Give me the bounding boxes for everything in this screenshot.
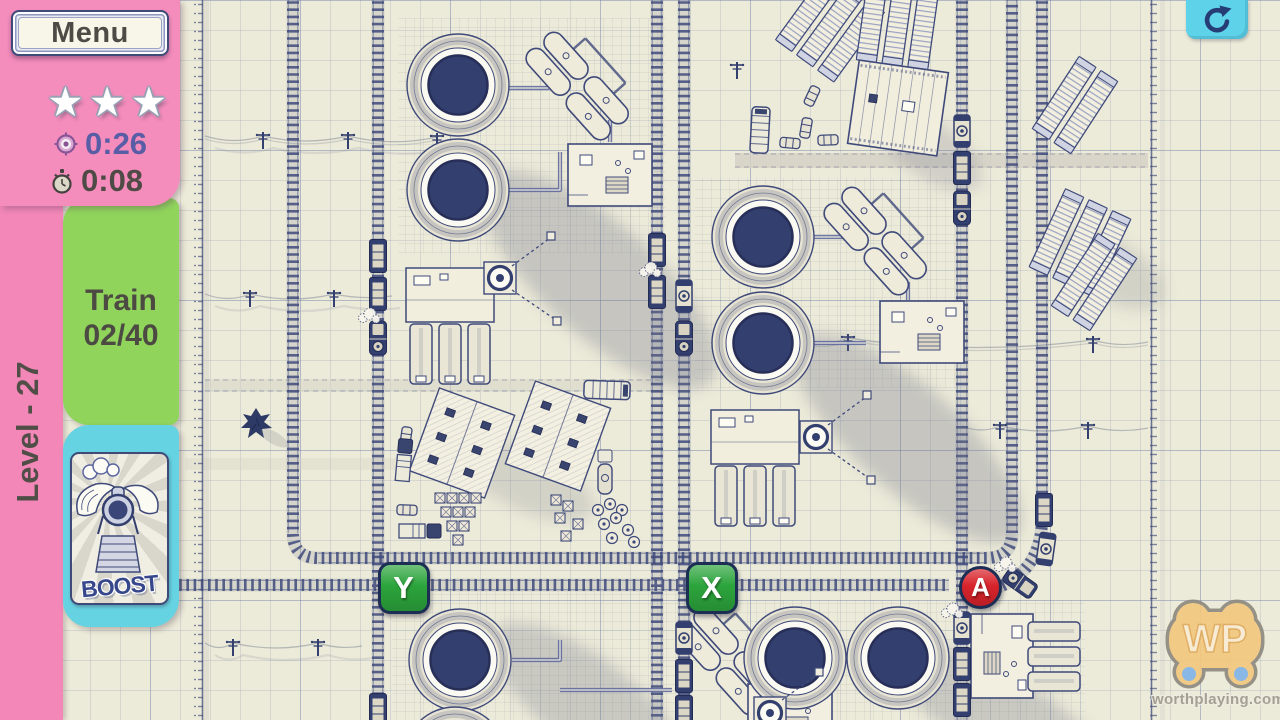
boost-card[interactable]: BOOST xyxy=(70,452,169,605)
wp-logo-icon: WP xyxy=(1159,594,1271,690)
star-icon: ★ xyxy=(89,80,126,124)
train-count: 02/40 xyxy=(63,318,179,353)
target-icon xyxy=(53,131,79,157)
boost-tab: BOOST xyxy=(63,425,179,627)
elapsed-time-value: 0:08 xyxy=(81,163,143,199)
winged-locomotive-icon xyxy=(72,454,163,575)
restart-button[interactable] xyxy=(1186,0,1248,39)
switch-button-A[interactable]: A xyxy=(959,566,1002,609)
watermark: WP worthplaying.com xyxy=(1152,594,1278,708)
switch-button-X[interactable]: X xyxy=(686,562,738,614)
train-counter-tab: Train 02/40 xyxy=(63,198,179,425)
blueprint-map xyxy=(0,0,1280,720)
train-counter-text: Train 02/40 xyxy=(63,283,179,353)
switch-label: Y xyxy=(393,570,414,606)
switch-label: X xyxy=(701,570,722,606)
restart-icon xyxy=(1201,5,1233,35)
elapsed-time-row: 0:08 xyxy=(49,163,143,199)
star-rating: ★ ★ ★ xyxy=(47,80,167,124)
target-time-value: 0:26 xyxy=(85,126,147,162)
level-label: Level - 27 xyxy=(10,302,50,562)
star-icon: ★ xyxy=(47,80,84,124)
menu-button[interactable]: Menu xyxy=(11,10,169,56)
star-icon: ★ xyxy=(131,80,168,124)
menu-button-label: Menu xyxy=(18,17,162,49)
wp-initials: WP xyxy=(1183,617,1247,661)
switch-label: A xyxy=(971,572,990,603)
train-label: Train xyxy=(63,283,179,318)
game-screen: YXA WP worthplaying.com Train 02/40 xyxy=(0,0,1280,720)
switch-button-Y[interactable]: Y xyxy=(378,562,430,614)
stopwatch-icon xyxy=(49,168,75,195)
target-time-row: 0:26 xyxy=(53,126,147,162)
watermark-site-text: worthplaying.com xyxy=(1152,691,1278,708)
